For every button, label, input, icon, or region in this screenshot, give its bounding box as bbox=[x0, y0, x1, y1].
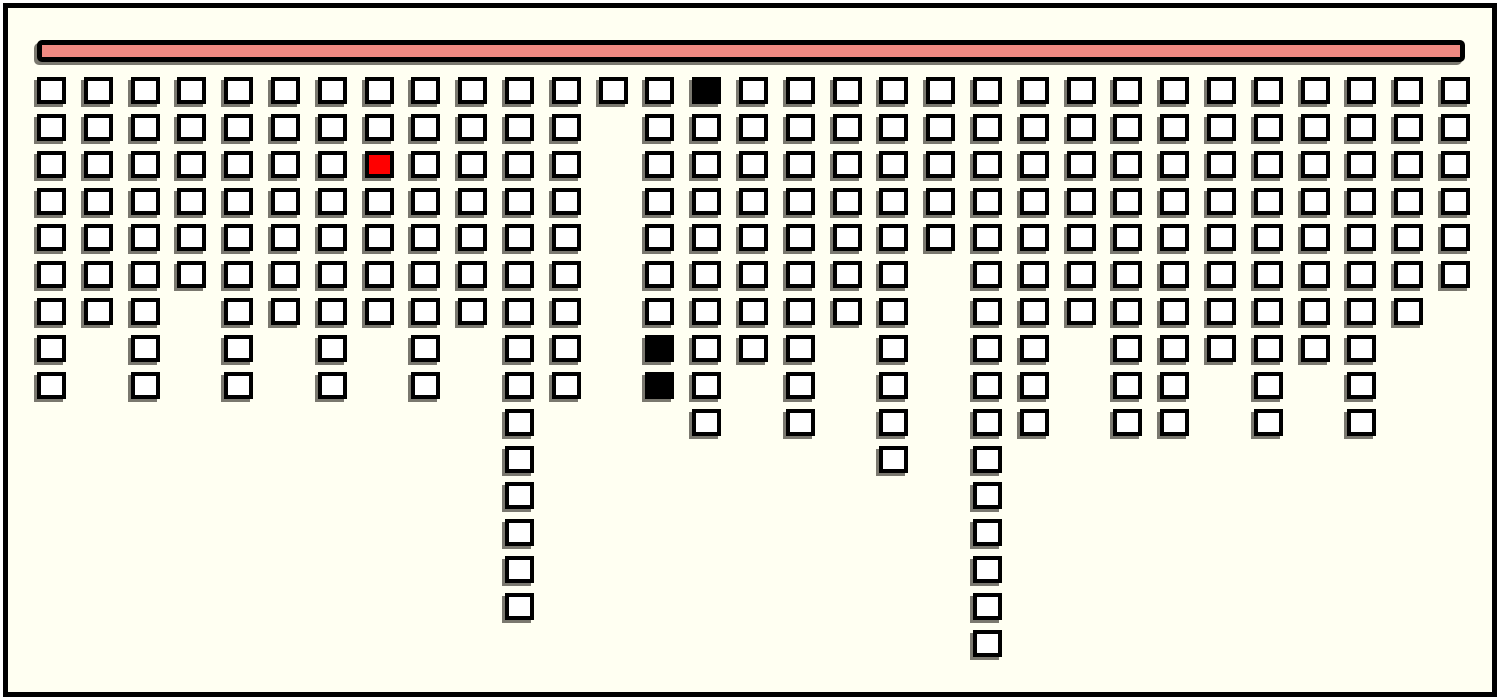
grid-cell bbox=[926, 77, 955, 104]
grid-cell bbox=[879, 188, 908, 215]
grid-cell bbox=[224, 335, 253, 362]
grid-cell bbox=[973, 298, 1002, 325]
grid-cell bbox=[739, 224, 768, 251]
grid-cell bbox=[973, 224, 1002, 251]
grid-cell bbox=[318, 372, 347, 399]
grid-cell bbox=[365, 261, 394, 288]
grid-cell bbox=[1113, 298, 1142, 325]
grid-cell bbox=[1160, 261, 1189, 288]
grid-cell bbox=[1254, 409, 1283, 436]
grid-cell bbox=[552, 77, 581, 104]
grid-cell bbox=[318, 224, 347, 251]
grid-cell bbox=[1067, 298, 1096, 325]
grid-cell bbox=[739, 77, 768, 104]
grid-cell bbox=[458, 261, 487, 288]
grid-cell bbox=[739, 114, 768, 141]
grid-cell bbox=[1441, 114, 1470, 141]
grid-cell bbox=[1394, 114, 1423, 141]
grid-cell bbox=[411, 224, 440, 251]
grid-cell bbox=[271, 261, 300, 288]
grid-cell bbox=[1441, 261, 1470, 288]
grid-cell bbox=[1067, 261, 1096, 288]
grid-cell bbox=[271, 188, 300, 215]
grid-cell bbox=[1020, 261, 1049, 288]
grid-cell bbox=[1207, 114, 1236, 141]
grid-cell bbox=[739, 261, 768, 288]
grid-cell bbox=[833, 77, 862, 104]
grid-cell bbox=[1347, 298, 1376, 325]
grid-cell bbox=[505, 409, 534, 436]
grid-cell bbox=[1301, 77, 1330, 104]
grid-cell bbox=[1254, 298, 1283, 325]
grid-cell bbox=[411, 114, 440, 141]
grid-cell bbox=[786, 151, 815, 178]
grid-cell bbox=[926, 224, 955, 251]
grid-cell bbox=[224, 372, 253, 399]
grid-cell bbox=[131, 335, 160, 362]
grid-cell bbox=[1113, 188, 1142, 215]
grid-cell bbox=[505, 446, 534, 473]
grid-cell bbox=[1113, 114, 1142, 141]
grid-cell bbox=[1160, 224, 1189, 251]
grid-cell bbox=[224, 77, 253, 104]
grid-cell bbox=[505, 114, 534, 141]
grid-cell bbox=[1301, 335, 1330, 362]
black-cell bbox=[692, 77, 721, 104]
grid-cell bbox=[645, 114, 674, 141]
black-cell bbox=[645, 335, 674, 362]
grid-cell bbox=[973, 593, 1002, 620]
grid-cell bbox=[505, 151, 534, 178]
grid-cell bbox=[552, 261, 581, 288]
grid-cell bbox=[224, 261, 253, 288]
grid-cell bbox=[552, 188, 581, 215]
grid-cell bbox=[1020, 77, 1049, 104]
grid-cell bbox=[833, 224, 862, 251]
grid-cell bbox=[645, 77, 674, 104]
grid-cell bbox=[1113, 261, 1142, 288]
grid-cell bbox=[318, 151, 347, 178]
grid-cell bbox=[926, 188, 955, 215]
grid-cell bbox=[37, 298, 66, 325]
grid-cell bbox=[458, 188, 487, 215]
grid-cell bbox=[131, 188, 160, 215]
grid-cell bbox=[645, 224, 674, 251]
grid-cell bbox=[786, 335, 815, 362]
grid-cell bbox=[505, 188, 534, 215]
grid-cell bbox=[1441, 151, 1470, 178]
grid-cell bbox=[552, 114, 581, 141]
grid-cell bbox=[505, 372, 534, 399]
grid-cell bbox=[1347, 335, 1376, 362]
grid-cell bbox=[224, 114, 253, 141]
grid-cell bbox=[1160, 77, 1189, 104]
grid-cell bbox=[271, 298, 300, 325]
grid-cell bbox=[1254, 261, 1283, 288]
grid-cell bbox=[1160, 151, 1189, 178]
grid-cell bbox=[37, 188, 66, 215]
grid-cell bbox=[645, 151, 674, 178]
grid-cell bbox=[505, 593, 534, 620]
grid-cell bbox=[177, 261, 206, 288]
grid-cell bbox=[833, 298, 862, 325]
grid-cell bbox=[1347, 188, 1376, 215]
grid-cell bbox=[1394, 261, 1423, 288]
grid-cell bbox=[786, 409, 815, 436]
grid-cell bbox=[271, 224, 300, 251]
grid-cell bbox=[1160, 298, 1189, 325]
grid-cell bbox=[1207, 224, 1236, 251]
grid-cell bbox=[739, 188, 768, 215]
grid-cell bbox=[505, 335, 534, 362]
grid-cell bbox=[1207, 335, 1236, 362]
grid-cell bbox=[411, 335, 440, 362]
grid-cell bbox=[318, 114, 347, 141]
grid-cell bbox=[177, 188, 206, 215]
grid-cell bbox=[879, 77, 908, 104]
grid-cell bbox=[833, 261, 862, 288]
grid-cell bbox=[411, 261, 440, 288]
grid-cell bbox=[552, 224, 581, 251]
grid-cell bbox=[692, 335, 721, 362]
grid-cell bbox=[84, 114, 113, 141]
grid-cell bbox=[411, 298, 440, 325]
grid-cell bbox=[1394, 77, 1423, 104]
grid-cell bbox=[1113, 151, 1142, 178]
grid-cell bbox=[1067, 188, 1096, 215]
grid-cell bbox=[692, 409, 721, 436]
grid-cell bbox=[37, 335, 66, 362]
grid-cell bbox=[365, 188, 394, 215]
grid-cell bbox=[1020, 114, 1049, 141]
grid-cell bbox=[505, 224, 534, 251]
grid-cell bbox=[645, 188, 674, 215]
grid-cell bbox=[271, 114, 300, 141]
grid-cell bbox=[505, 261, 534, 288]
grid-cell bbox=[1441, 224, 1470, 251]
grid-cell bbox=[1067, 77, 1096, 104]
grid-cell bbox=[973, 446, 1002, 473]
grid-cell bbox=[84, 224, 113, 251]
grid-cell bbox=[1160, 335, 1189, 362]
grid-cell bbox=[1113, 224, 1142, 251]
grid-cell bbox=[1347, 224, 1376, 251]
grid-cell bbox=[786, 77, 815, 104]
grid-cell bbox=[879, 298, 908, 325]
grid-cell bbox=[1160, 372, 1189, 399]
grid-cell bbox=[692, 261, 721, 288]
grid-cell bbox=[131, 224, 160, 251]
grid-cell bbox=[1394, 188, 1423, 215]
grid-cell bbox=[224, 298, 253, 325]
grid-cell bbox=[1020, 372, 1049, 399]
grid-cell bbox=[1067, 114, 1096, 141]
grid-cell bbox=[1301, 151, 1330, 178]
grid-cell bbox=[1020, 335, 1049, 362]
grid-cell bbox=[552, 372, 581, 399]
grid-cell bbox=[411, 188, 440, 215]
grid-cell bbox=[1160, 409, 1189, 436]
grid-cell bbox=[973, 372, 1002, 399]
grid-cell bbox=[177, 151, 206, 178]
grid-cell bbox=[786, 261, 815, 288]
grid-cell bbox=[879, 224, 908, 251]
grid-cell bbox=[1207, 188, 1236, 215]
grid-cell bbox=[973, 556, 1002, 583]
grid-cell bbox=[1067, 151, 1096, 178]
grid-cell bbox=[84, 188, 113, 215]
grid-cell bbox=[1254, 114, 1283, 141]
grid-cell bbox=[177, 77, 206, 104]
grid-cell bbox=[1301, 188, 1330, 215]
grid-cell bbox=[1207, 261, 1236, 288]
grid-cell bbox=[37, 224, 66, 251]
grid-cell bbox=[37, 77, 66, 104]
grid-cell bbox=[1113, 409, 1142, 436]
grid-cell bbox=[505, 77, 534, 104]
grid-cell bbox=[786, 224, 815, 251]
grid-cell bbox=[365, 224, 394, 251]
grid-cell bbox=[37, 114, 66, 141]
grid-cell bbox=[1301, 261, 1330, 288]
grid-cell bbox=[1441, 77, 1470, 104]
grid-cell bbox=[786, 114, 815, 141]
grid-cell bbox=[645, 261, 674, 288]
grid-cell bbox=[318, 77, 347, 104]
grid-cell bbox=[505, 298, 534, 325]
grid-cell bbox=[84, 77, 113, 104]
grid-cell bbox=[926, 151, 955, 178]
grid-cell bbox=[552, 298, 581, 325]
grid-cell bbox=[879, 372, 908, 399]
grid-cell bbox=[552, 151, 581, 178]
grid-cell bbox=[1301, 114, 1330, 141]
grid-cell bbox=[1254, 335, 1283, 362]
grid-cell bbox=[879, 335, 908, 362]
grid-cell bbox=[973, 335, 1002, 362]
grid-cell bbox=[1207, 77, 1236, 104]
grid-cell bbox=[692, 151, 721, 178]
grid-cell bbox=[131, 77, 160, 104]
grid-cell bbox=[1301, 224, 1330, 251]
grid-cell bbox=[1347, 372, 1376, 399]
grid-cell bbox=[692, 114, 721, 141]
grid-cell bbox=[1160, 188, 1189, 215]
grid-cell bbox=[879, 446, 908, 473]
grid-cell bbox=[833, 114, 862, 141]
grid-cell bbox=[1020, 298, 1049, 325]
grid-cell bbox=[833, 188, 862, 215]
grid-cell bbox=[505, 519, 534, 546]
grid-cell bbox=[271, 151, 300, 178]
grid-cell bbox=[1113, 77, 1142, 104]
grid-cell bbox=[177, 224, 206, 251]
grid-cell bbox=[973, 519, 1002, 546]
cell-grid bbox=[0, 0, 1500, 700]
grid-cell bbox=[692, 298, 721, 325]
grid-cell bbox=[1254, 188, 1283, 215]
grid-cell bbox=[786, 188, 815, 215]
grid-cell bbox=[1067, 224, 1096, 251]
grid-cell bbox=[318, 298, 347, 325]
grid-cell bbox=[505, 556, 534, 583]
grid-cell bbox=[131, 372, 160, 399]
grid-cell bbox=[1347, 151, 1376, 178]
grid-cell bbox=[1347, 114, 1376, 141]
grid-cell bbox=[1441, 188, 1470, 215]
grid-cell bbox=[973, 409, 1002, 436]
grid-cell bbox=[739, 151, 768, 178]
app-window bbox=[0, 0, 1500, 700]
grid-cell bbox=[786, 372, 815, 399]
grid-cell bbox=[84, 151, 113, 178]
grid-cell bbox=[131, 114, 160, 141]
grid-cell bbox=[1113, 372, 1142, 399]
grid-cell bbox=[973, 188, 1002, 215]
grid-cell bbox=[1207, 298, 1236, 325]
grid-cell bbox=[1254, 372, 1283, 399]
grid-cell bbox=[1394, 151, 1423, 178]
grid-cell bbox=[739, 335, 768, 362]
grid-cell bbox=[411, 372, 440, 399]
grid-cell bbox=[177, 114, 206, 141]
grid-cell bbox=[1113, 335, 1142, 362]
grid-cell bbox=[37, 261, 66, 288]
grid-cell bbox=[458, 77, 487, 104]
grid-cell bbox=[131, 261, 160, 288]
grid-cell bbox=[973, 151, 1002, 178]
grid-cell bbox=[318, 188, 347, 215]
grid-cell bbox=[1160, 114, 1189, 141]
grid-cell bbox=[552, 335, 581, 362]
grid-cell bbox=[1347, 409, 1376, 436]
grid-cell bbox=[879, 409, 908, 436]
grid-cell bbox=[1347, 261, 1376, 288]
grid-cell bbox=[458, 151, 487, 178]
grid-cell bbox=[1020, 151, 1049, 178]
grid-cell bbox=[318, 335, 347, 362]
grid-cell bbox=[365, 114, 394, 141]
grid-cell bbox=[505, 482, 534, 509]
red-cell bbox=[365, 151, 394, 178]
grid-cell bbox=[1394, 298, 1423, 325]
grid-cell bbox=[224, 151, 253, 178]
grid-cell bbox=[224, 224, 253, 251]
black-cell bbox=[645, 372, 674, 399]
grid-cell bbox=[692, 188, 721, 215]
grid-cell bbox=[1020, 409, 1049, 436]
grid-cell bbox=[37, 151, 66, 178]
grid-cell bbox=[458, 224, 487, 251]
grid-cell bbox=[84, 298, 113, 325]
grid-cell bbox=[973, 482, 1002, 509]
grid-cell bbox=[879, 114, 908, 141]
grid-cell bbox=[879, 151, 908, 178]
grid-cell bbox=[1254, 151, 1283, 178]
grid-cell bbox=[1347, 77, 1376, 104]
grid-cell bbox=[1301, 298, 1330, 325]
grid-cell bbox=[973, 77, 1002, 104]
grid-cell bbox=[879, 261, 908, 288]
grid-cell bbox=[692, 224, 721, 251]
grid-cell bbox=[973, 114, 1002, 141]
grid-cell bbox=[224, 188, 253, 215]
grid-cell bbox=[1394, 224, 1423, 251]
grid-cell bbox=[131, 298, 160, 325]
grid-cell bbox=[1020, 188, 1049, 215]
grid-cell bbox=[131, 151, 160, 178]
grid-cell bbox=[973, 630, 1002, 657]
grid-cell bbox=[926, 114, 955, 141]
grid-cell bbox=[692, 372, 721, 399]
grid-cell bbox=[1207, 151, 1236, 178]
grid-cell bbox=[599, 77, 628, 104]
grid-cell bbox=[318, 261, 347, 288]
grid-cell bbox=[645, 298, 674, 325]
grid-cell bbox=[833, 151, 862, 178]
grid-cell bbox=[1020, 224, 1049, 251]
grid-cell bbox=[271, 77, 300, 104]
grid-cell bbox=[365, 77, 394, 104]
grid-cell bbox=[1254, 77, 1283, 104]
grid-cell bbox=[365, 298, 394, 325]
grid-cell bbox=[411, 151, 440, 178]
grid-cell bbox=[1254, 224, 1283, 251]
grid-cell bbox=[739, 298, 768, 325]
grid-cell bbox=[84, 261, 113, 288]
grid-cell bbox=[37, 372, 66, 399]
grid-cell bbox=[458, 114, 487, 141]
grid-cell bbox=[411, 77, 440, 104]
grid-cell bbox=[458, 298, 487, 325]
grid-cell bbox=[786, 298, 815, 325]
grid-cell bbox=[973, 261, 1002, 288]
